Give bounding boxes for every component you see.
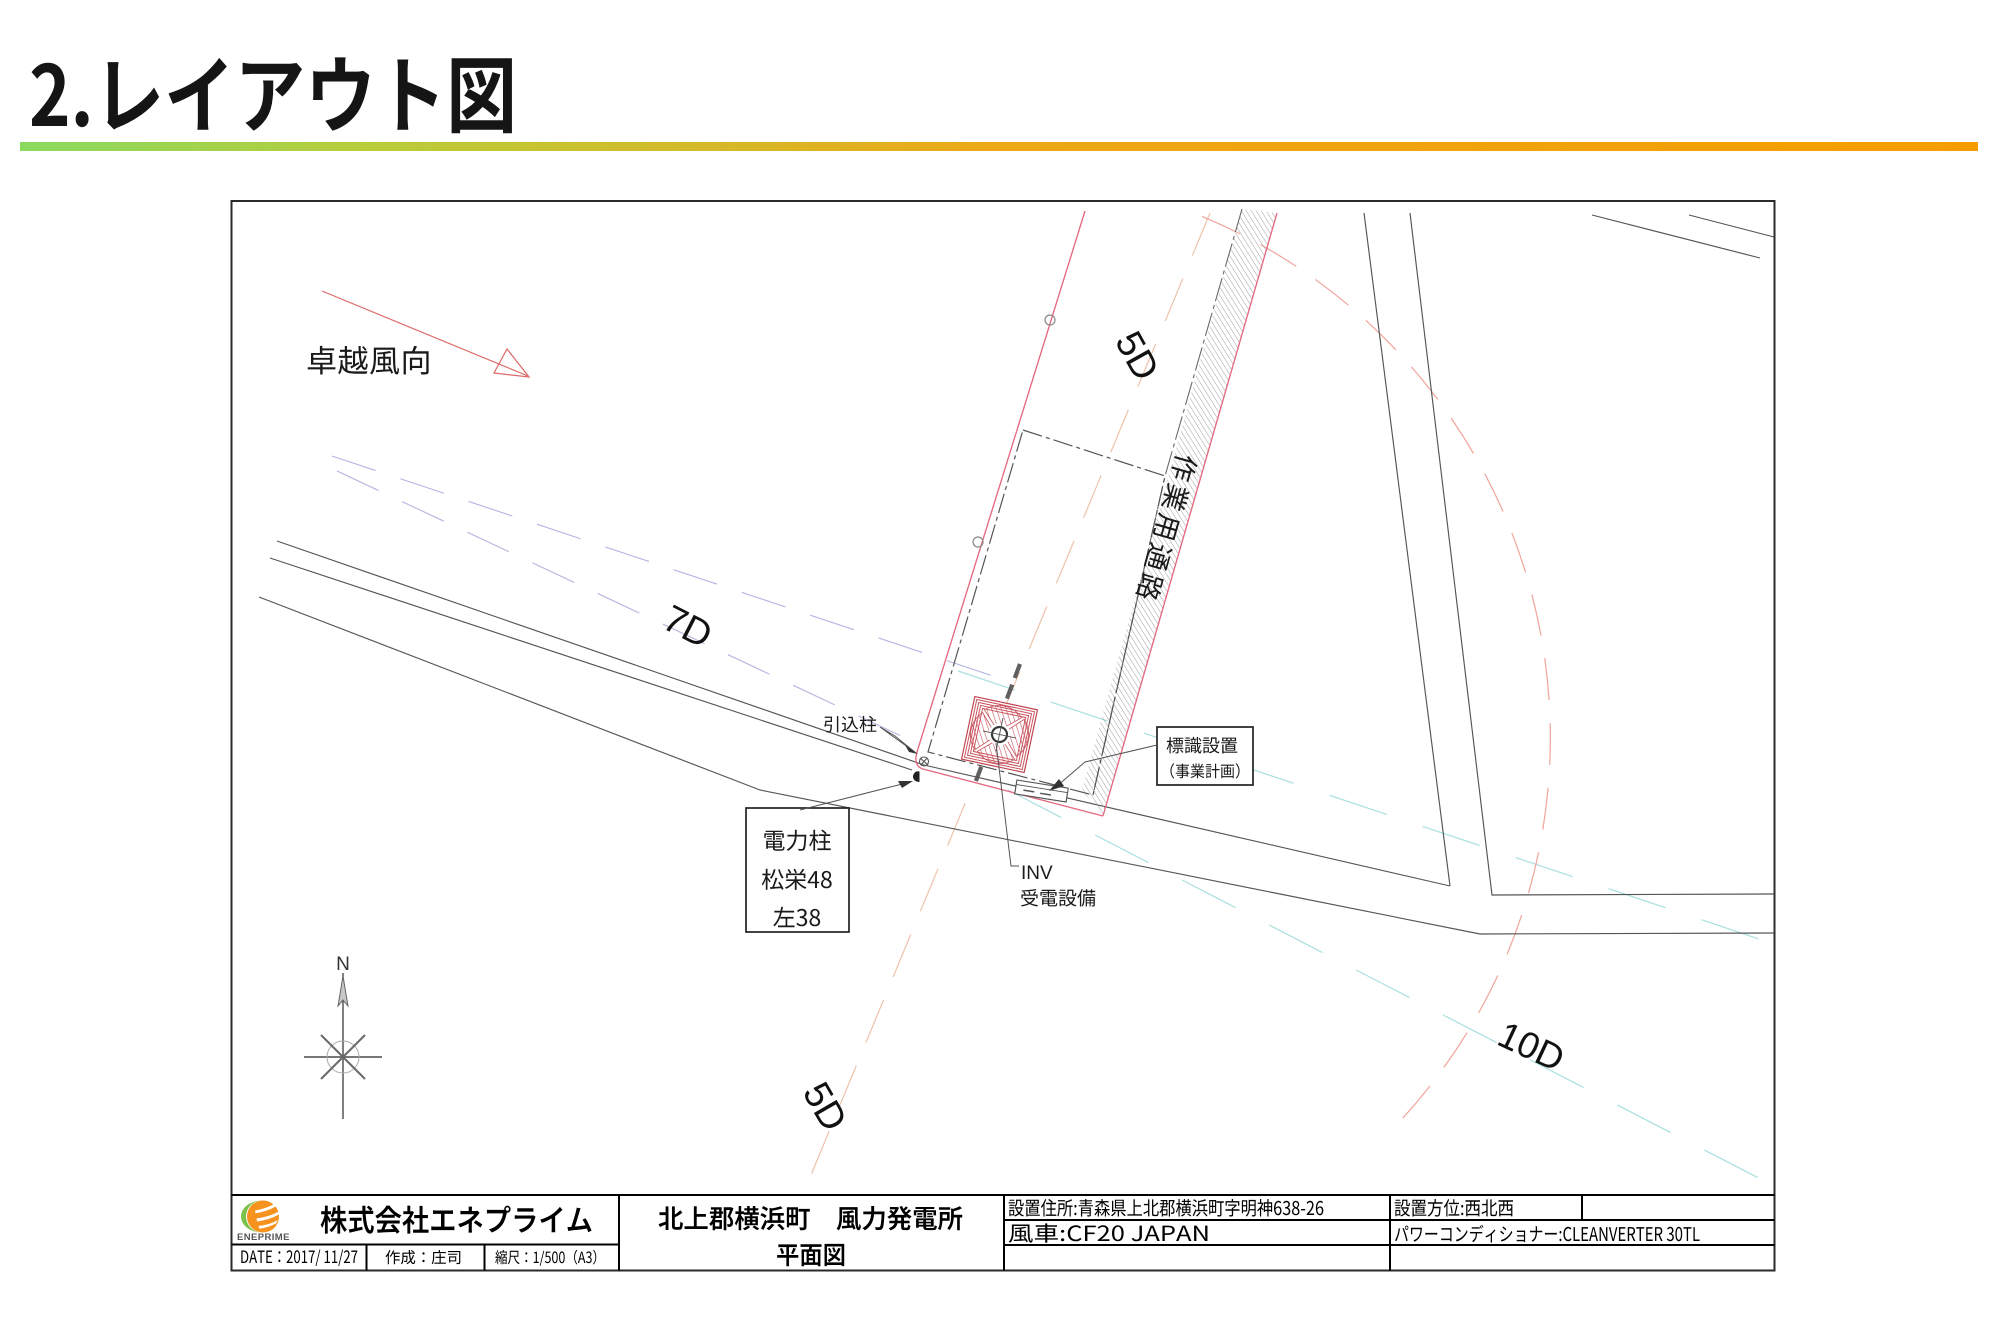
svg-text:ENEPRIME: ENEPRIME (237, 1232, 290, 1243)
svg-text:INV: INV (1021, 863, 1053, 884)
svg-text:N: N (336, 954, 350, 975)
